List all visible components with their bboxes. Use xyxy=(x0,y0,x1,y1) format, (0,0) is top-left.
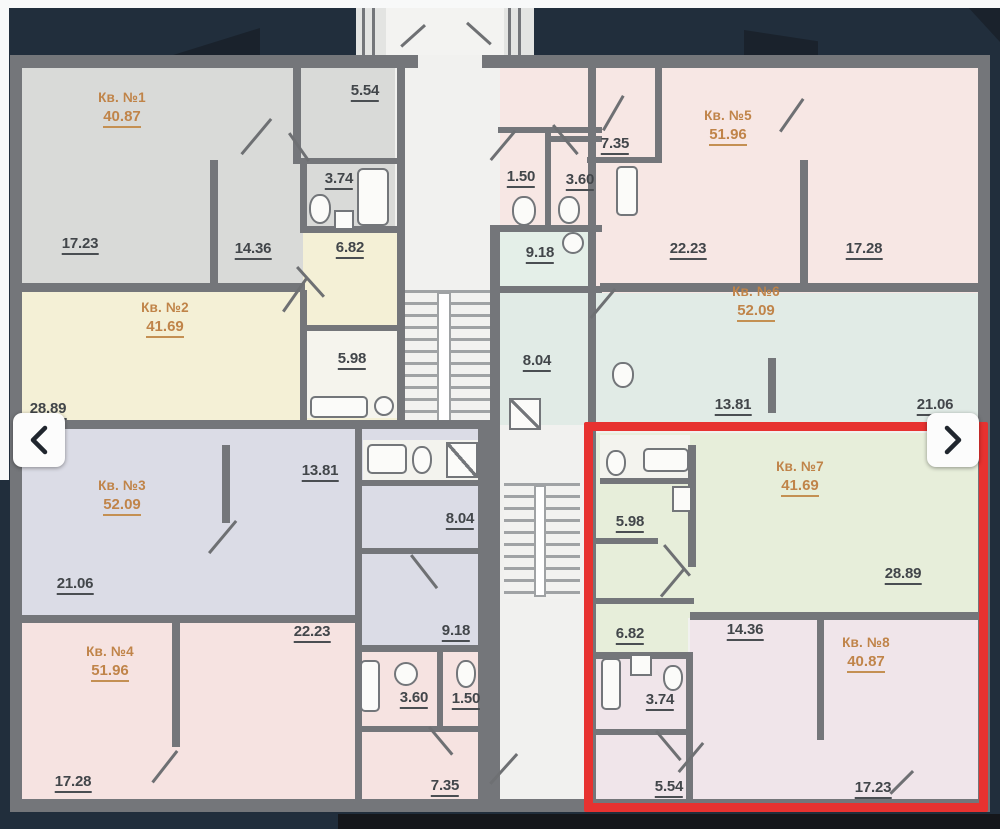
floorplan-viewer: 5.54 3.74 17.23 14.36 6.82 5.98 28.89 13… xyxy=(0,0,1000,829)
apartment-area: 51.96 xyxy=(709,126,747,146)
wall xyxy=(518,8,521,55)
bathtub-fixture xyxy=(310,396,368,418)
wall xyxy=(545,130,551,232)
apartment-name: Кв. №1 xyxy=(57,90,187,105)
bathtub-fixture xyxy=(357,168,389,226)
next-image-button[interactable] xyxy=(927,413,979,467)
room-area-label: 9.18 xyxy=(442,623,470,642)
room-area-label: 8.04 xyxy=(523,353,551,372)
entrance-canopy-inner xyxy=(386,8,504,55)
balcony-silhouette xyxy=(962,8,1000,42)
wall xyxy=(478,425,500,812)
apartment-label: Кв. №3 52.09 xyxy=(57,478,187,516)
room-area-label: 22.23 xyxy=(670,241,707,260)
staircase-lower-rail xyxy=(534,485,546,597)
apartment-label: Кв. №4 51.96 xyxy=(45,644,175,682)
wall xyxy=(300,325,398,331)
room-area-label: 13.81 xyxy=(715,397,752,416)
wall xyxy=(10,420,490,429)
room-area-label: 21.06 xyxy=(57,576,94,595)
wall xyxy=(10,55,990,68)
room-area-label: 3.60 xyxy=(400,690,428,709)
sink-fixture xyxy=(374,396,394,416)
wall xyxy=(800,160,808,292)
toilet-fixture xyxy=(412,446,432,474)
apartment-label: Кв. №6 52.09 xyxy=(691,284,821,322)
shaft-box xyxy=(446,442,478,478)
wall xyxy=(768,358,776,413)
room-area-label: 17.23 xyxy=(62,236,99,255)
chevron-left-icon xyxy=(26,424,52,456)
toilet-fixture xyxy=(612,362,634,388)
room-area-label: 1.50 xyxy=(452,691,480,710)
elevator-box xyxy=(509,398,541,430)
balcony-silhouette xyxy=(170,28,260,56)
toilet-fixture xyxy=(512,196,536,226)
wall xyxy=(10,283,305,292)
entrance-opening xyxy=(418,55,482,68)
apartment-area: 40.87 xyxy=(103,108,141,128)
selected-apartment-highlight[interactable] xyxy=(584,422,988,812)
apartment-name: Кв. №2 xyxy=(100,300,230,315)
wall xyxy=(222,445,230,523)
wall xyxy=(358,548,490,554)
wall xyxy=(508,8,511,55)
wall xyxy=(358,645,490,652)
room-area-label: 5.54 xyxy=(351,83,379,102)
room-area-label: 6.82 xyxy=(336,240,364,259)
wall xyxy=(490,225,500,430)
washer-fixture xyxy=(334,210,354,230)
room-area-label: 7.35 xyxy=(431,778,459,797)
wall xyxy=(358,726,490,732)
wall xyxy=(372,8,375,55)
toilet-fixture xyxy=(558,196,580,224)
room-area-label: 17.28 xyxy=(846,241,883,260)
prev-image-button[interactable] xyxy=(13,413,65,467)
bottom-caption-bar xyxy=(338,814,1000,829)
wall xyxy=(172,622,180,747)
wall xyxy=(300,162,307,233)
wall xyxy=(437,648,443,728)
room-area-label: 7.35 xyxy=(601,136,629,155)
room-area-label: 3.74 xyxy=(325,171,353,190)
apartment-area: 52.09 xyxy=(737,302,775,322)
bathtub-fixture xyxy=(360,660,380,712)
room-area-label: 22.23 xyxy=(294,624,331,643)
apartment-name: Кв. №6 xyxy=(691,284,821,299)
room-area-label: 13.81 xyxy=(302,463,339,482)
page-left-strip xyxy=(0,0,9,480)
wall xyxy=(362,8,365,55)
apartment-area: 52.09 xyxy=(103,496,141,516)
page-top-strip xyxy=(0,0,1000,8)
apartment-label: Кв. №1 40.87 xyxy=(57,90,187,128)
toilet-fixture xyxy=(309,194,331,224)
wall xyxy=(300,290,307,425)
apartment-label: Кв. №2 41.69 xyxy=(100,300,230,338)
wall xyxy=(587,157,655,163)
room-area-label: 1.50 xyxy=(507,169,535,188)
toilet-fixture xyxy=(456,660,476,688)
wall xyxy=(10,615,360,623)
room-area-label: 8.04 xyxy=(446,511,474,530)
room-area-label: 3.60 xyxy=(566,172,594,191)
apartment-name: Кв. №4 xyxy=(45,644,175,659)
sink-fixture xyxy=(562,232,584,254)
wall xyxy=(355,428,362,808)
wall xyxy=(210,160,218,290)
apartment-label: Кв. №5 51.96 xyxy=(663,108,793,146)
wall xyxy=(397,55,405,428)
room-area-label: 9.18 xyxy=(526,245,554,264)
apartment-area: 51.96 xyxy=(91,662,129,682)
apartment-name: Кв. №5 xyxy=(663,108,793,123)
bathtub-fixture xyxy=(367,444,407,474)
wall xyxy=(498,286,602,293)
chevron-right-icon xyxy=(940,424,966,456)
wall xyxy=(360,480,490,486)
apartment-area: 41.69 xyxy=(146,318,184,338)
room-area-label: 17.28 xyxy=(55,774,92,793)
apartment-name: Кв. №3 xyxy=(57,478,187,493)
staircase-upper-rail xyxy=(437,292,451,426)
wall xyxy=(655,66,662,163)
room-area-label: 14.36 xyxy=(235,241,272,260)
bathtub-fixture xyxy=(616,166,638,216)
sink-fixture xyxy=(394,662,418,686)
balcony-silhouette xyxy=(744,30,818,55)
room-area-label: 5.98 xyxy=(338,351,366,370)
